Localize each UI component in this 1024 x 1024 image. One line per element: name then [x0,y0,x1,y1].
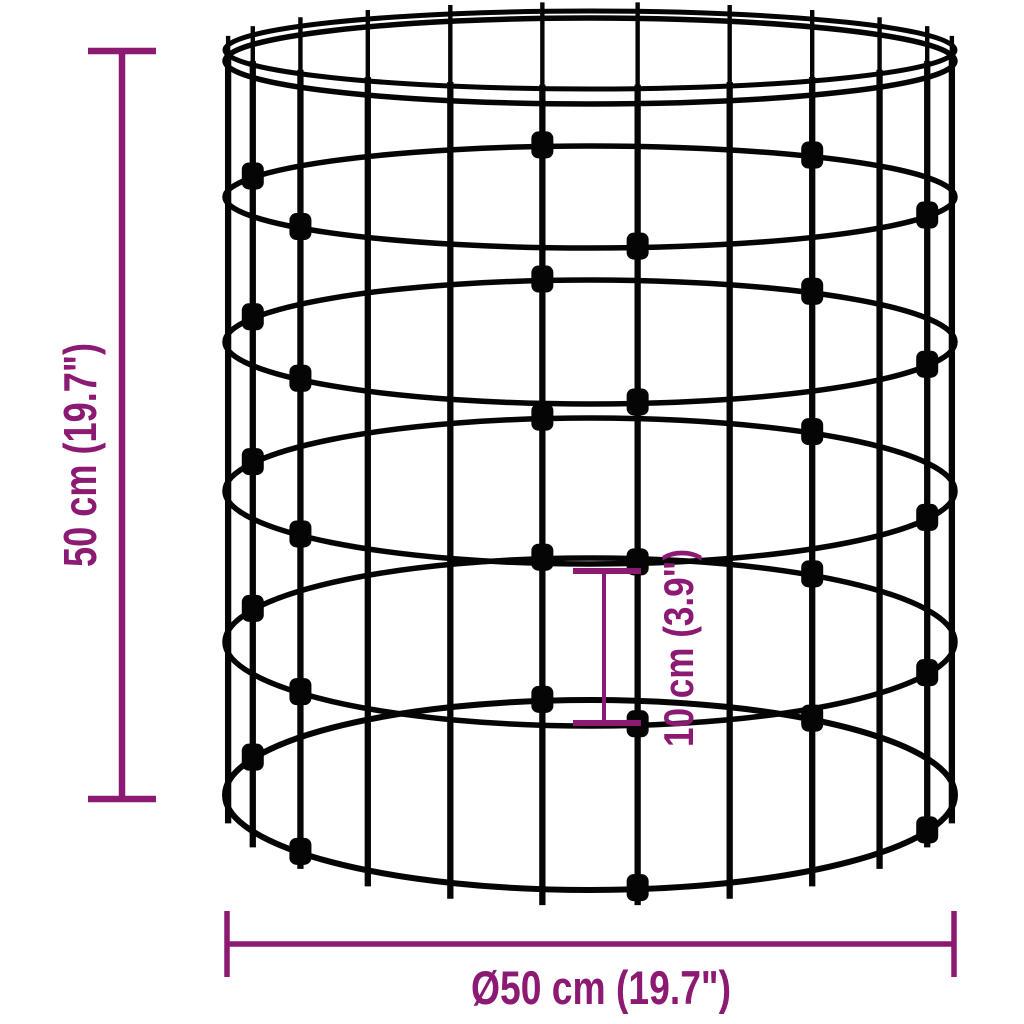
cage-wire-clamp [627,388,649,415]
cage-wire-clamp [242,303,264,330]
cage-wire-clamp [627,874,649,901]
product-dimension-diagram: 50 cm (19.7") 10 cm (3.9") Ø50 cm (19.7"… [0,0,1024,1024]
cage-wire-clamp [801,278,823,305]
cage-wire-clamp [531,686,553,713]
diameter-dimension: Ø50 cm (19.7") [227,911,954,1014]
cage-ring [225,418,955,564]
cage-wire-clamp [916,351,938,378]
cage-wire-clamp [801,560,823,587]
gabion-cage-drawing [225,2,955,905]
cage-wire-clamp [916,504,938,531]
ring-spacing-dimension-label: 10 cm (3.9") [655,549,702,747]
diameter-dimension-label: Ø50 cm (19.7") [471,961,731,1014]
cage-ring [225,280,955,404]
cage-wire-clamp [531,266,553,293]
cage-wire-clamp [627,233,649,260]
cage-ring [225,146,955,248]
cage-wire-clamp [531,404,553,431]
cage-wire-clamp [916,659,938,686]
cage-wire-clamp [801,418,823,445]
cage-wire-clamp [242,595,264,622]
cage-wire-clamp [289,678,311,705]
height-dimension: 50 cm (19.7") [54,51,156,799]
cage-wire-clamp [289,213,311,240]
cage-wire-clamp [242,744,264,771]
cage-wire-clamp [531,544,553,571]
cage-wire-clamp [289,365,311,392]
gabion-diagram-canvas: 50 cm (19.7") 10 cm (3.9") Ø50 cm (19.7"… [0,0,1024,1024]
cage-wire-clamp [289,520,311,547]
cage-wire-clamp [242,448,264,475]
cage-wire-clamp [916,816,938,843]
cage-wire-clamp [801,705,823,732]
cage-wire-clamp [242,162,264,189]
cage-wire-clamp [916,202,938,229]
cage-wire-clamp [531,131,553,158]
cage-top-rim-ring [225,11,955,89]
cage-wire-clamp [289,838,311,865]
cage-wire-clamp [801,142,823,169]
height-dimension-label: 50 cm (19.7") [54,343,106,567]
